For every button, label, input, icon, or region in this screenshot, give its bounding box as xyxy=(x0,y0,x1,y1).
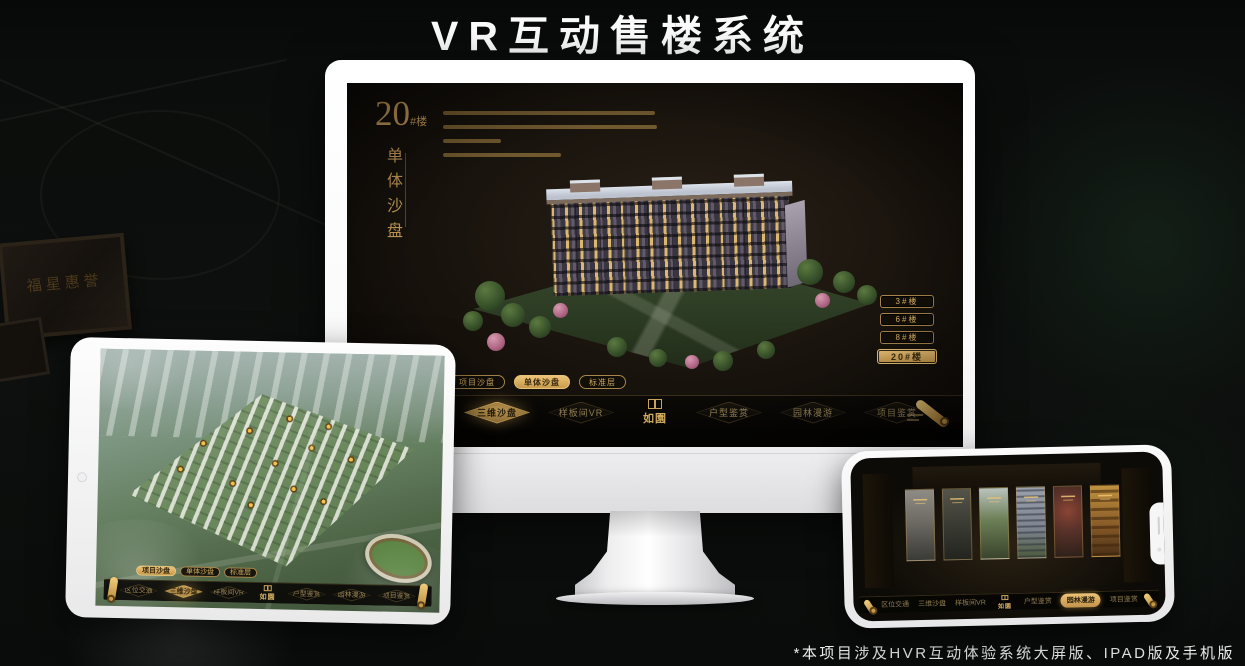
building-panel-title: 20#楼 xyxy=(375,96,427,131)
floor-button-6[interactable]: 6#楼 xyxy=(880,313,934,326)
tree xyxy=(501,303,525,327)
tree xyxy=(607,337,627,357)
roof-dormer xyxy=(652,177,682,190)
tablet-camera xyxy=(77,472,87,482)
tablet-device: 项目沙盘 单体沙盘 标准层 区位交通 三维沙盘 样板间VR 如園 户型鉴赏 园林… xyxy=(65,337,456,625)
phone-brand-logo: 如園 xyxy=(995,594,1015,609)
bg-foliage xyxy=(985,50,1245,430)
plaque-title: 福星惠誉 xyxy=(5,267,124,298)
tablet-brand-logo: 如園 xyxy=(254,584,280,602)
flower-tree xyxy=(553,303,568,318)
tree xyxy=(857,285,877,305)
floor-button-8[interactable]: 8#楼 xyxy=(880,331,934,344)
roof-dormer xyxy=(570,179,600,192)
flower-tree xyxy=(815,293,830,308)
tree xyxy=(529,316,551,338)
tree xyxy=(833,271,855,293)
mode-tab-group: 项目沙盘 单体沙盘 标准层 xyxy=(449,375,626,389)
phone-device: 区位交通 三维沙盘 样板间VR 如園 户型鉴赏 园林漫游 项目鉴赏 xyxy=(841,444,1175,628)
tablet-nav-item-project-gallery[interactable]: 项目鉴赏 xyxy=(377,589,415,603)
panel-vertical-title: 单体沙盘 xyxy=(380,147,404,267)
monitor-stand-foot xyxy=(556,592,754,605)
building-3d-scene xyxy=(457,153,887,388)
poster-canvas: 福星惠誉 VR互动售楼系统 *本项目涉及HVR互动体验系统大屏版、IPAD版及手… xyxy=(0,0,1245,666)
nav-item-garden-tour[interactable]: 园林漫游 xyxy=(780,402,846,424)
floor-button-3[interactable]: 3#楼 xyxy=(880,295,934,308)
gallery-card[interactable] xyxy=(979,487,1010,560)
nav-item-floorplans[interactable]: 户型鉴赏 xyxy=(696,402,762,424)
tree xyxy=(475,281,505,311)
tablet-nav-item-3d-sandbox[interactable]: 三维沙盘 xyxy=(165,585,203,599)
phone-nav-item-project-gallery[interactable]: 项目鉴赏 xyxy=(1110,594,1138,605)
gallery-card[interactable] xyxy=(1090,484,1121,557)
brand-logo-icon xyxy=(1001,595,1008,600)
phone-nav-item-showroom-vr[interactable]: 样板间VR xyxy=(955,598,986,609)
tablet-screen: 项目沙盘 单体沙盘 标准层 区位交通 三维沙盘 样板间VR 如園 户型鉴赏 园林… xyxy=(95,349,444,613)
tablet-tab-single-sandbox[interactable]: 单体沙盘 xyxy=(180,566,220,577)
phone-camera xyxy=(1157,547,1161,551)
gallery-card[interactable] xyxy=(942,488,973,561)
phone-screen: 区位交通 三维沙盘 样板间VR 如園 户型鉴赏 园林漫游 项目鉴赏 xyxy=(850,451,1166,621)
monitor-stand xyxy=(575,511,735,595)
interior-column xyxy=(1122,468,1153,583)
building-number: 20 xyxy=(375,94,410,133)
intro-text-line xyxy=(443,139,501,143)
tree xyxy=(649,349,667,367)
tablet-nav-item-showroom-vr[interactable]: 样板间VR xyxy=(210,585,248,599)
building-model xyxy=(550,173,792,307)
floor-button-group: 3#楼 6#楼 8#楼 20#楼 xyxy=(877,295,937,364)
flower-tree xyxy=(685,355,699,369)
footnote: *本项目涉及HVR互动体验系统大屏版、IPAD版及手机版 xyxy=(794,642,1235,663)
scroll-ornament-icon xyxy=(907,400,951,427)
intro-text-line xyxy=(443,111,655,115)
tablet-nav-item-garden-tour[interactable]: 园林漫游 xyxy=(333,588,371,602)
interior-column xyxy=(863,474,894,589)
nav-item-showroom-vr[interactable]: 样板间VR xyxy=(548,402,614,424)
brand-logo: 如園 xyxy=(632,399,678,426)
gallery-card[interactable] xyxy=(905,489,936,562)
phone-notch xyxy=(1149,502,1165,564)
panel-vertical-rule xyxy=(405,153,406,227)
tree xyxy=(797,259,823,285)
nav-item-3d-sandbox[interactable]: 三维沙盘 xyxy=(464,402,530,424)
scroll-ornament-icon xyxy=(107,576,119,601)
brand-logo-icon xyxy=(648,399,662,409)
background-plaque-small xyxy=(0,317,50,386)
building-number-suffix: #楼 xyxy=(410,116,427,128)
tablet-nav-item-floorplans[interactable]: 户型鉴赏 xyxy=(288,587,326,601)
gallery-card[interactable] xyxy=(1053,485,1084,558)
gallery-card[interactable] xyxy=(1016,486,1047,559)
tablet-nav-item-location[interactable]: 区位交通 xyxy=(120,584,158,598)
phone-nav-item-3d-sandbox[interactable]: 三维沙盘 xyxy=(918,598,946,609)
tree xyxy=(713,351,733,371)
roof-dormer xyxy=(734,174,764,187)
building-facade xyxy=(551,196,792,296)
phone-speaker xyxy=(1158,516,1160,534)
intro-text-line xyxy=(443,125,657,129)
tab-standard-floor[interactable]: 标准层 xyxy=(579,375,626,389)
tab-single-sandbox[interactable]: 单体沙盘 xyxy=(514,375,570,389)
flower-tree xyxy=(487,333,505,351)
floor-button-20[interactable]: 20#楼 xyxy=(877,349,937,364)
phone-nav-item-floorplans[interactable]: 户型鉴赏 xyxy=(1024,596,1052,607)
phone-nav-item-location[interactable]: 区位交通 xyxy=(881,599,909,610)
tab-project-sandbox[interactable]: 项目沙盘 xyxy=(449,375,505,389)
scroll-ornament-icon xyxy=(1143,592,1156,608)
tree xyxy=(463,311,483,331)
scroll-ornament-icon xyxy=(863,598,876,614)
brand-logo-icon xyxy=(264,585,272,591)
page-title: VR互动售楼系统 xyxy=(0,2,1245,62)
tablet-tab-project-sandbox[interactable]: 项目沙盘 xyxy=(136,565,176,576)
tablet-tab-standard-floor[interactable]: 标准层 xyxy=(224,567,257,578)
tree xyxy=(757,341,775,359)
scene-gallery xyxy=(905,484,1121,561)
phone-nav-item-garden-tour[interactable]: 园林漫游 xyxy=(1061,593,1101,608)
scroll-ornament-icon xyxy=(417,583,429,608)
